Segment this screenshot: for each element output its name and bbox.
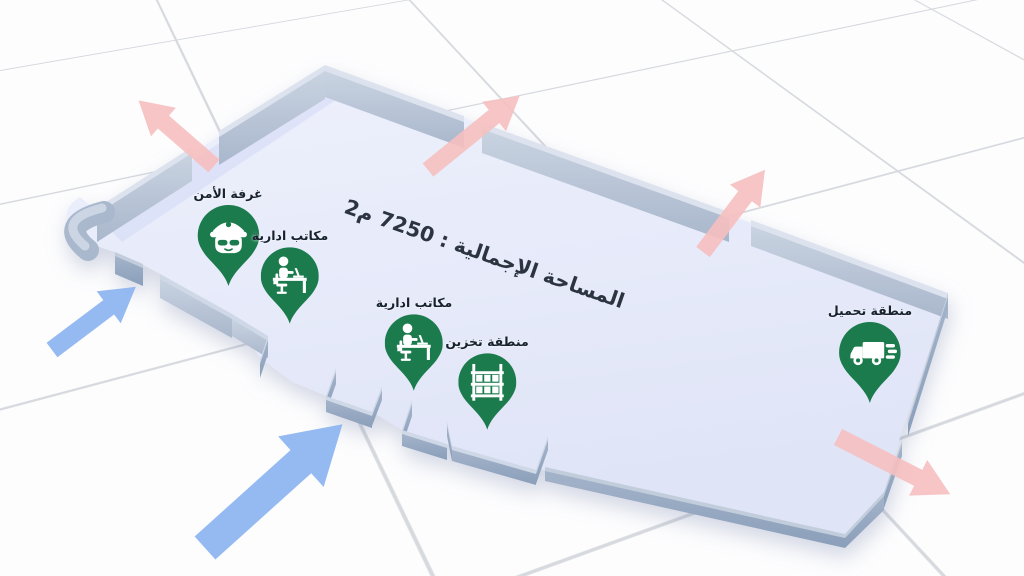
- pin-body: [261, 247, 319, 323]
- flow-arrows: [0, 0, 1024, 576]
- pin-label: منطقة تخزين: [445, 334, 528, 349]
- exit-arrow-top-center: [416, 81, 532, 185]
- pin-label: منطقة تحميل: [828, 303, 912, 318]
- exit-arrow-top-left: [126, 86, 226, 180]
- map-pin-storage-area[interactable]: منطقة تخزين: [445, 334, 528, 431]
- exit-arrow-top-right: [688, 158, 780, 263]
- pin-marker: [458, 353, 516, 431]
- pin-body: [385, 314, 443, 390]
- exit-arrow-bottom-right: [829, 419, 959, 512]
- pin-marker: [839, 322, 901, 404]
- entrance-arrow-main: [182, 399, 365, 573]
- pin-body: [839, 322, 901, 403]
- pin-marker: [197, 205, 259, 287]
- pin-label: مكاتب ادارية: [376, 295, 452, 310]
- pin-marker: [261, 247, 319, 325]
- map-pin-loading-area[interactable]: منطقة تحميل: [828, 303, 912, 404]
- map-pin-admin-offices-1[interactable]: مكاتب ادارية: [252, 228, 328, 325]
- map-pin-admin-offices-2[interactable]: مكاتب ادارية: [376, 295, 452, 392]
- floorplan-scene: المساحة الإجمالية : 7250 م2 غرفة الأمن: [0, 0, 1024, 576]
- pin-marker: [385, 314, 443, 392]
- pin-label: مكاتب ادارية: [252, 228, 328, 243]
- entrance-arrow-left: [40, 271, 148, 366]
- pin-label: غرفة الأمن: [193, 186, 262, 201]
